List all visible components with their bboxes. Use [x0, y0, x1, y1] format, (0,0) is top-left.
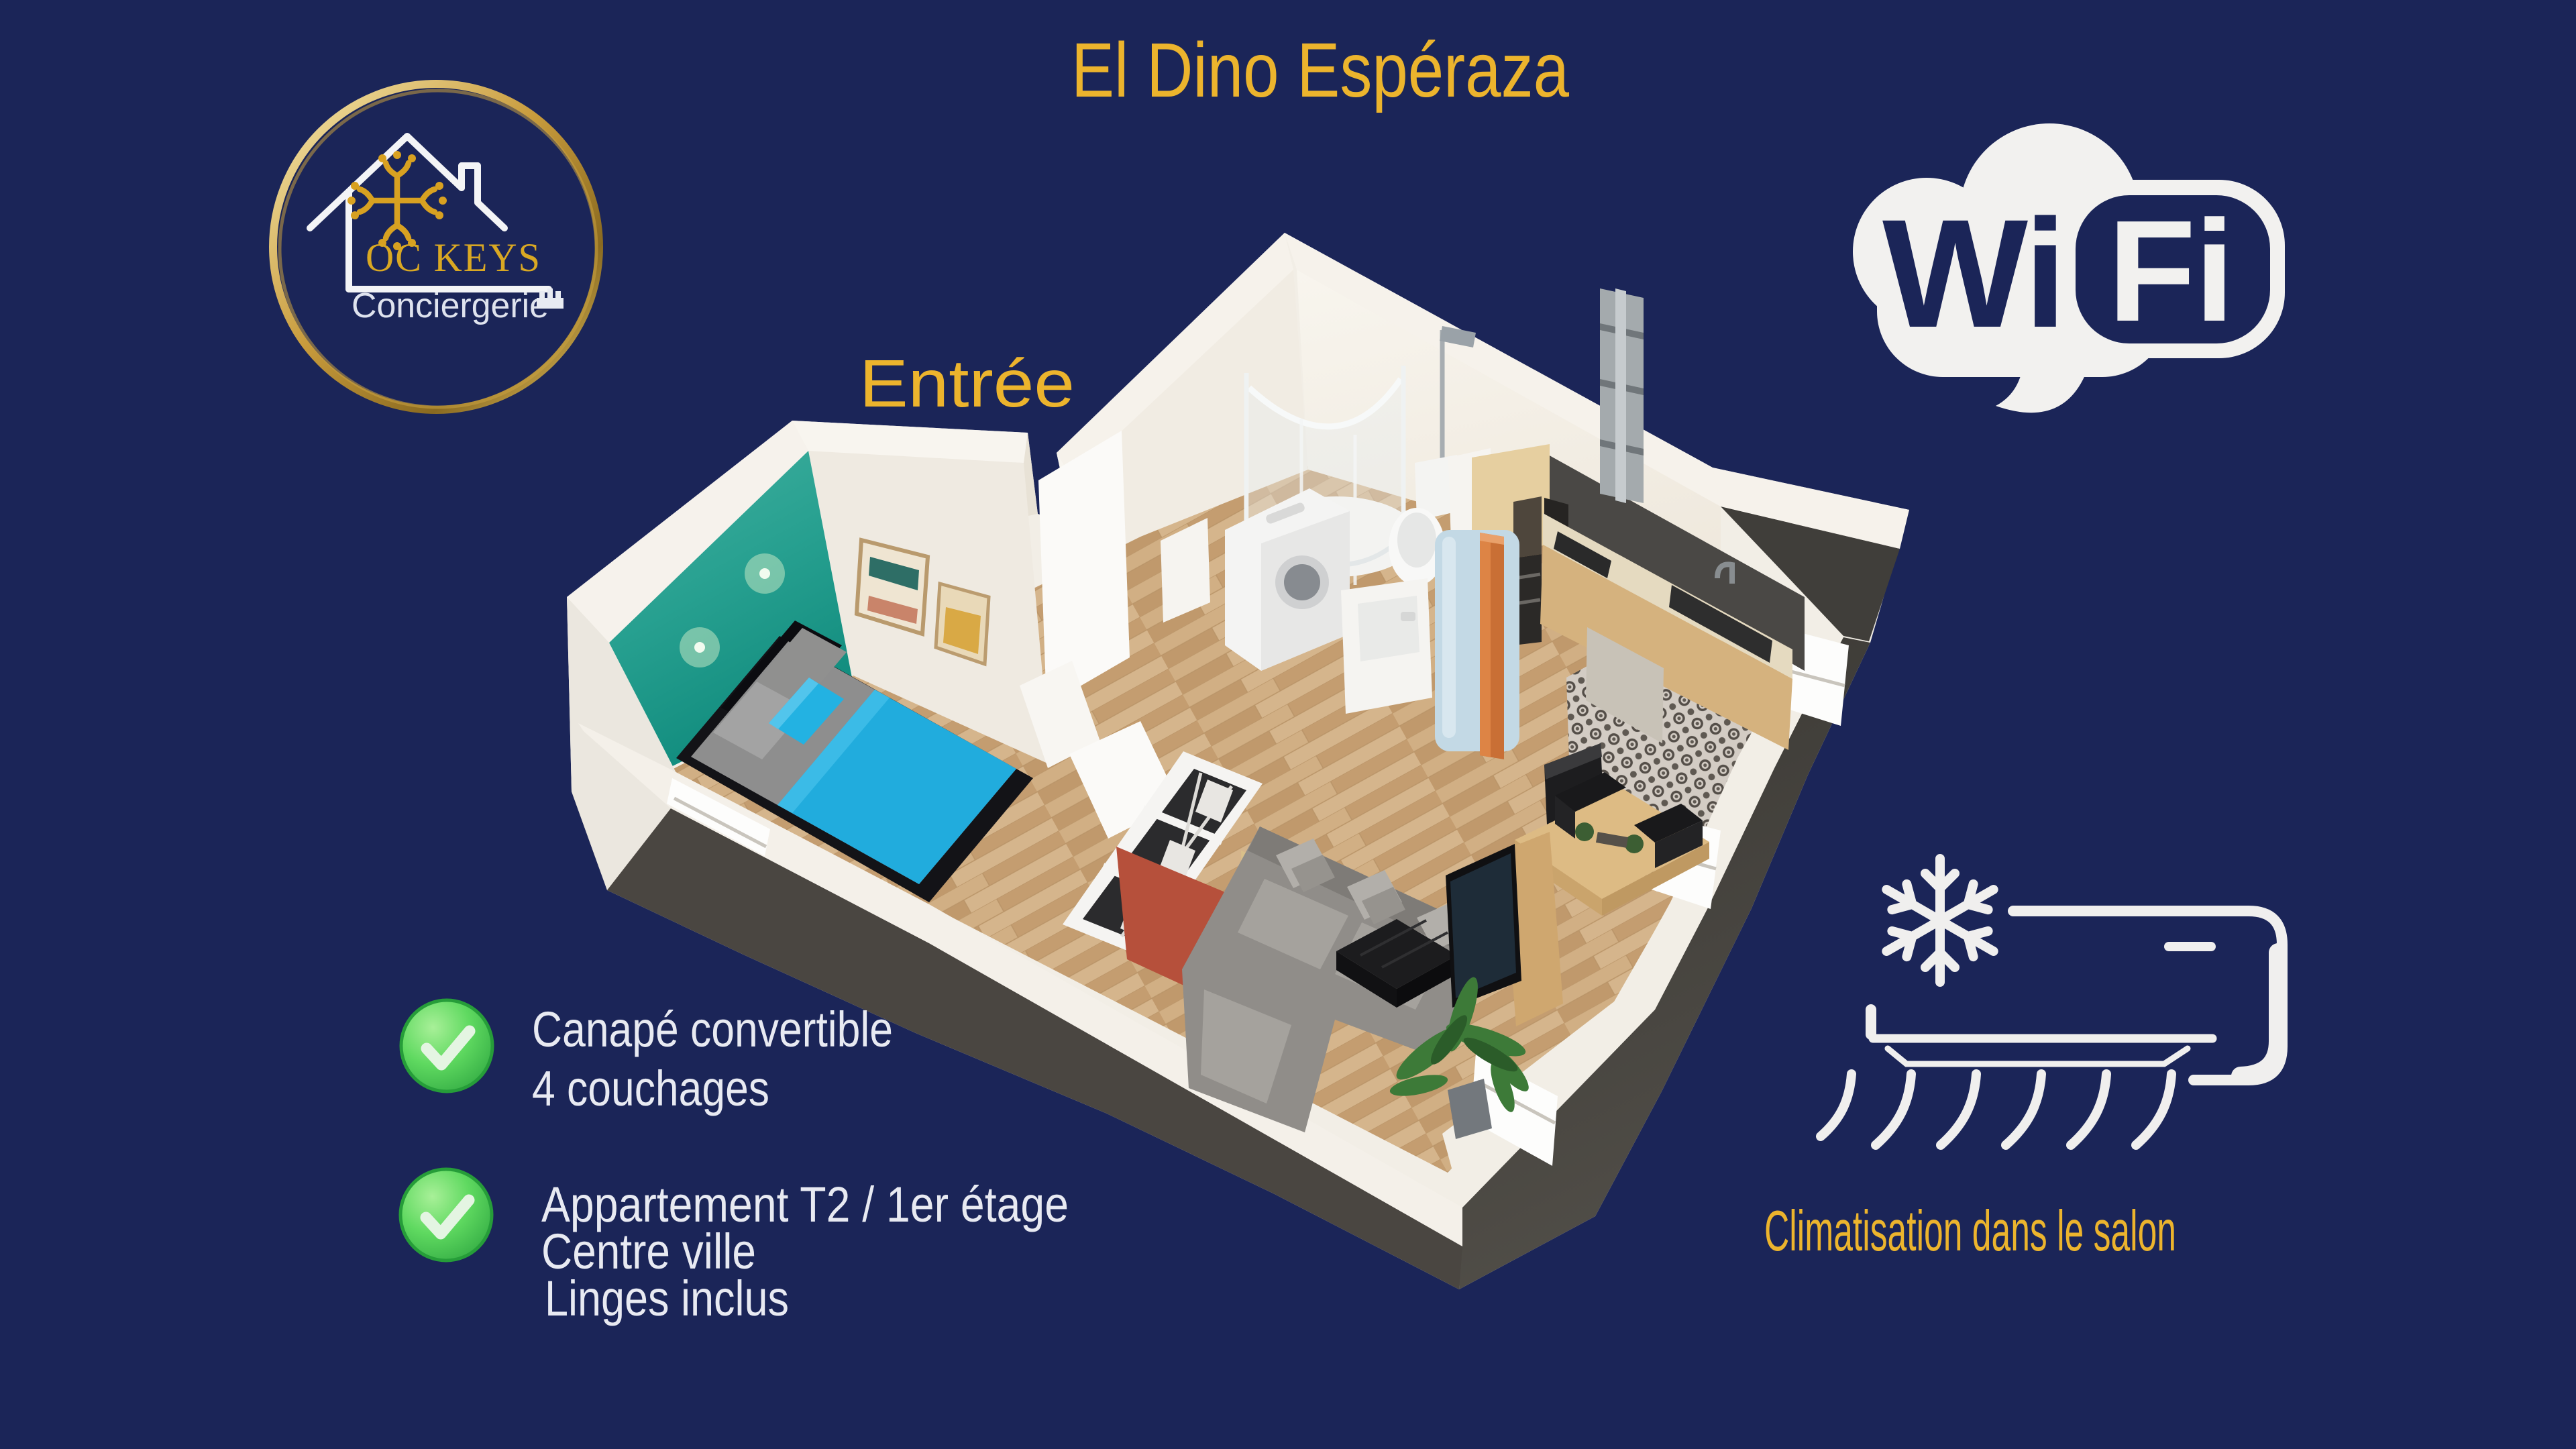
svg-text:Wi: Wi	[1882, 187, 2064, 360]
svg-text:Canapé convertible: Canapé convertible	[532, 1002, 893, 1057]
svg-text:Linges inclus: Linges inclus	[545, 1271, 789, 1326]
svg-text:Fi: Fi	[2108, 190, 2233, 352]
svg-text:OC KEYS: OC KEYS	[366, 235, 541, 280]
svg-text:4 couchages: 4 couchages	[532, 1061, 769, 1116]
svg-text:El Dino Espéraza: El Dino Espéraza	[1071, 28, 1569, 113]
svg-text:Conciergerie: Conciergerie	[352, 286, 549, 325]
svg-text:Entrée: Entrée	[859, 346, 1075, 421]
svg-text:Climatisation dans le salon: Climatisation dans le salon	[1764, 1199, 2176, 1263]
